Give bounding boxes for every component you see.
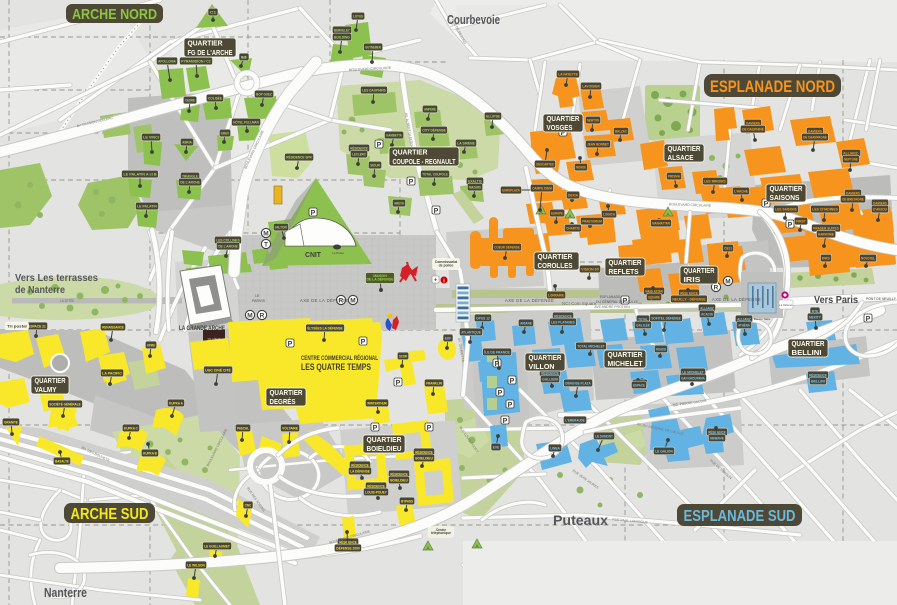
svg-text:PONT DE NEUILLY: PONT DE NEUILLY (866, 297, 897, 301)
svg-text:CNIT: CNIT (305, 252, 322, 259)
svg-text:La Défense: La Défense (779, 303, 793, 307)
svg-text:OPUS 12: OPUS 12 (476, 316, 490, 320)
svg-text:ESPACE 21: ESPACE 21 (28, 324, 46, 328)
svg-text:RENAISSANCE: RENAISSANCE (102, 325, 124, 329)
svg-text:LES SAISONS: LES SAISONS (775, 207, 797, 211)
svg-text:LA PACIFIC: LA PACIFIC (102, 371, 122, 375)
svg-text:LOUIS-POUEY: LOUIS-POUEY (365, 490, 387, 494)
svg-text:QUARTIER: QUARTIER (367, 435, 403, 444)
svg-text:RÉSIDENCE SPR: RÉSIDENCE SPR (286, 154, 312, 159)
svg-text:QUARTIER: QUARTIER (538, 252, 574, 261)
svg-text:L'EMERAUDE: L'EMERAUDE (565, 418, 585, 422)
svg-text:P: P (311, 210, 316, 217)
svg-text:ALLIANZ-: ALLIANZ- (843, 151, 860, 155)
svg-text:EDF: EDF (445, 336, 452, 340)
svg-text:RÉSIDENCE: RÉSIDENCE (554, 313, 572, 318)
svg-text:+: + (434, 278, 437, 284)
svg-text:TOTAL: TOTAL (638, 317, 649, 321)
svg-text:SQUARE: SQUARE (648, 295, 660, 299)
svg-text:BALZAC: BALZAC (615, 129, 627, 133)
svg-text:MICHELET: MICHELET (608, 359, 644, 368)
svg-text:CITY DÉFENSE: CITY DÉFENSE (422, 127, 446, 132)
svg-text:CEDRE: CEDRE (185, 98, 195, 102)
svg-text:AXE DE LA DÉFENSE: AXE DE LA DÉFENSE (505, 298, 554, 303)
svg-text:LE PALATIN: LE PALATIN (137, 204, 157, 208)
svg-text:CHARTIS: CHARTIS (566, 226, 580, 230)
svg-text:RÉSIDENCE: RÉSIDENCE (350, 145, 368, 150)
svg-text:QUARTIER: QUARTIER (770, 184, 804, 193)
svg-text:EREX: EREX (221, 131, 229, 135)
svg-text:FIRST: FIRST (796, 219, 807, 223)
svg-text:RÉSIDENCE: RÉSIDENCE (708, 429, 726, 434)
svg-text:LE DUMONT: LE DUMONT (595, 434, 613, 438)
svg-text:A: A (666, 211, 669, 216)
svg-text:GAN GROUPAMA: GAN GROUPAMA (681, 376, 705, 380)
svg-text:LECLERC: LECLERC (352, 152, 366, 156)
svg-text:GAMBETTA: GAMBETTA (386, 133, 402, 137)
svg-text:LOGICA: LOGICA (603, 212, 615, 216)
svg-text:PRAETORIUM: PRAETORIUM (582, 219, 602, 223)
svg-text:LA DÉFENSE: LA DÉFENSE (350, 468, 370, 473)
svg-text:M: M (725, 279, 730, 286)
svg-text:BELLINI: BELLINI (811, 379, 825, 383)
svg-text:APOLLONIA: APOLLONIA (158, 59, 176, 63)
svg-text:CB21: CB21 (724, 246, 732, 250)
svg-text:DÉFENSE PLAZA: DÉFENSE PLAZA (565, 380, 591, 385)
svg-text:GALILÉE: GALILÉE (636, 322, 650, 327)
svg-text:NEXITY: NEXITY (809, 315, 821, 319)
svg-text:Tri postal: Tri postal (7, 324, 27, 328)
svg-text:ABRIA: ABRIA (182, 140, 192, 144)
svg-text:AXE DE LA DÉFENSE: AXE DE LA DÉFENSE (300, 298, 349, 303)
svg-text:QUARTIER: QUARTIER (529, 353, 563, 362)
svg-text:ALSACE: ALSACE (668, 153, 694, 162)
svg-text:LAVOISIER: LAVOISIER (582, 84, 600, 88)
svg-text:NCI Com Square: NCI Com Square (562, 301, 597, 306)
svg-text:PYRAMIDION / C2: PYRAMIDION / C2 (181, 59, 210, 63)
svg-text:BOIELDIEU: BOIELDIEU (390, 478, 408, 482)
svg-text:M: M (350, 298, 355, 305)
svg-text:AXE DE LA DÉFENSE: AXE DE LA DÉFENSE (712, 297, 761, 302)
svg-text:P: P (377, 142, 382, 149)
svg-text:P: P (288, 341, 293, 348)
svg-text:BOIELDIEU: BOIELDIEU (415, 456, 433, 460)
svg-text:P: P (788, 222, 793, 229)
svg-text:LE PALATIN A et B: LE PALATIN A et B (123, 172, 157, 176)
svg-text:P: P (361, 339, 366, 346)
svg-text:DE DAUPHINÉ: DE DAUPHINÉ (742, 126, 764, 131)
svg-text:HILTON: HILTON (275, 225, 287, 229)
svg-text:LE VINCI: LE VINCI (143, 135, 159, 139)
svg-text:KUPKA B: KUPKA B (143, 451, 157, 455)
svg-text:QUARTIER: QUARTIER (608, 350, 644, 359)
svg-text:LOTUS: LOTUS (353, 14, 363, 18)
svg-text:COROLLES: COROLLES (538, 261, 573, 270)
svg-text:AMPÈRE: AMPÈRE (424, 106, 436, 111)
svg-text:BELLINI: BELLINI (792, 348, 822, 357)
svg-text:DÉFENSE 2000: DÉFENSE 2000 (336, 545, 360, 550)
svg-text:COEUR DÉFENSE: COEUR DÉFENSE (494, 244, 520, 249)
svg-text:BYPASS: BYPASS (401, 499, 413, 503)
svg-text:ESPLANADE SUD: ESPLANADE SUD (684, 508, 796, 525)
svg-text:ACACIA: ACACIA (701, 312, 713, 316)
svg-text:JEAN BONNET: JEAN BONNET (587, 142, 609, 146)
svg-text:QUARTIER: QUARTIER (668, 144, 702, 153)
svg-text:RÉSIDENCE: RÉSIDENCE (809, 372, 827, 377)
svg-text:ARCHE SUD: ARCHE SUD (71, 506, 149, 523)
svg-text:LA SIRÈNE: LA SIRÈNE (457, 140, 475, 145)
svg-text:EUROPE: EUROPE (551, 211, 563, 215)
svg-text:P: P (508, 402, 513, 409)
svg-text:LORRAINE: LORRAINE (548, 293, 564, 297)
svg-text:TRIANGLE: TRIANGLE (182, 174, 198, 178)
svg-text:DAMIERS: DAMIERS (846, 191, 860, 195)
svg-text:NEWTON: NEWTON (587, 118, 599, 122)
svg-text:SAISONS: SAISONS (770, 193, 800, 202)
svg-text:QUARTIER: QUARTIER (792, 339, 826, 348)
svg-text:DEGRÉS: DEGRÉS (270, 397, 296, 406)
svg-text:P: P (409, 179, 414, 186)
svg-text:M: M (263, 231, 268, 238)
svg-text:LE: LE (255, 294, 260, 298)
svg-text:ALLIANZ: ALLIANZ (737, 317, 751, 321)
svg-text:ESPLANADE NORD: ESPLANADE NORD (710, 77, 835, 96)
svg-text:CAMPE DIEM: CAMPE DIEM (532, 186, 552, 190)
svg-text:P: P (498, 390, 503, 397)
svg-text:L'HACHE: L'HACHE (734, 189, 748, 193)
svg-text:QUARTIER: QUARTIER (684, 266, 716, 275)
svg-text:CNC: CNC (245, 503, 252, 507)
svg-text:BASALTE: BASALTE (55, 459, 69, 463)
svg-text:GRANITE: GRANITE (4, 420, 18, 424)
svg-text:MANHATTAN: MANHATTAN (652, 221, 670, 225)
svg-text:LES CITADINES: LES CITADINES (812, 207, 838, 211)
svg-text:R: R (260, 313, 265, 320)
svg-text:QUARTIER: QUARTIER (270, 388, 304, 397)
svg-text:LES PLATANES: LES PLATANES (551, 320, 575, 324)
svg-text:DE L'ARCHE: DE L'ARCHE (180, 180, 200, 184)
svg-text:ESPLANADE: ESPLANADE (600, 295, 621, 299)
svg-text:RÉSIDENCE: RÉSIDENCE (390, 471, 408, 476)
svg-text:LES QUATRE TEMPS: LES QUATRE TEMPS (301, 362, 371, 373)
svg-text:Vers Paris: Vers Paris (814, 294, 858, 306)
svg-text:HARMONIE: HARMONIE (818, 232, 834, 236)
svg-text:Bassin Takis: Bassin Takis (754, 317, 771, 321)
svg-text:P: P (427, 425, 432, 432)
svg-text:LA JETÉE: LA JETÉE (60, 298, 75, 303)
svg-text:C1: C1 (210, 10, 216, 14)
svg-text:DAMIERS: DAMIERS (873, 201, 887, 205)
svg-text:TOTAL COUPOLE: TOTAL COUPOLE (422, 172, 448, 176)
svg-text:de Nanterre: de Nanterre (15, 285, 65, 296)
svg-text:QUARTIER: QUARTIER (188, 38, 224, 47)
svg-text:DU GÉNÉRAL DE GAULLE: DU GÉNÉRAL DE GAULLE (596, 299, 639, 304)
svg-text:EUROPLAZA: EUROPLAZA (502, 188, 520, 192)
svg-text:QUARTIER: QUARTIER (609, 258, 643, 267)
svg-text:LES DAUPHINS: LES DAUPHINS (362, 88, 386, 92)
svg-text:FRASER SUITES: FRASER SUITES (813, 226, 839, 230)
svg-text:P: P (373, 425, 378, 432)
svg-text:GUYNEMER: GUYNEMER (365, 45, 381, 49)
svg-text:ATLANTIQUE: ATLANTIQUE (461, 330, 481, 334)
svg-text:P: P (503, 418, 508, 425)
svg-text:AREVA: AREVA (394, 201, 404, 205)
svg-text:DE L'ARCHE: DE L'ARCHE (218, 244, 238, 248)
svg-text:PARVIS: PARVIS (252, 299, 265, 303)
svg-text:NEUILLY - DÉFENSE: NEUILLY - DÉFENSE (672, 296, 706, 301)
svg-text:AVE ANDRÉ PROTHIN: AVE ANDRÉ PROTHIN (594, 304, 630, 309)
svg-text:MAZARS: MAZARS (469, 185, 481, 189)
svg-text:KUPKA A: KUPKA A (169, 401, 183, 405)
svg-text:DE LA DÉFENSE: DE LA DÉFENSE (366, 276, 394, 281)
svg-text:Puteaux: Puteaux (553, 512, 608, 528)
svg-text:La Poste: La Poste (332, 251, 344, 255)
svg-text:ALLIANZ: ALLIANZ (700, 306, 714, 310)
svg-text:LA FAYETTE: LA FAYETTE (558, 72, 578, 76)
svg-text:GALLIENI: GALLIENI (542, 377, 558, 381)
svg-text:D'ANJOU: D'ANJOU (873, 207, 887, 211)
svg-text:P: P (510, 378, 515, 385)
svg-text:TOTAL MICHELET: TOTAL MICHELET (577, 344, 605, 348)
svg-text:RÉSIDENCE: RÉSIDENCE (367, 483, 385, 488)
svg-text:SIDUR: SIDUR (370, 163, 380, 167)
svg-text:LINEA: LINEA (550, 446, 560, 450)
svg-text:LE GUILLAUMET: LE GUILLAUMET (204, 544, 230, 548)
svg-text:A: A (426, 545, 429, 550)
svg-text:BUILDING: BUILDING (334, 35, 350, 39)
svg-text:VALMY: VALMY (35, 385, 57, 394)
svg-text:LES COLLINES: LES COLLINES (216, 238, 240, 242)
svg-text:EXALTIS: EXALTIS (468, 179, 482, 183)
svg-text:M: M (247, 313, 252, 320)
svg-text:UGC CINÉ CITÉ: UGC CINÉ CITÉ (205, 367, 231, 372)
svg-text:T: T (264, 242, 268, 249)
svg-text:RÉSIDENCE: RÉSIDENCE (351, 462, 369, 467)
svg-text:SOCIÉTÉ GÉNÉRALE: SOCIÉTÉ GÉNÉRALE (49, 401, 81, 406)
svg-text:RÉSIDENCE: RÉSIDENCE (415, 449, 433, 454)
svg-text:CENTRE COMMERCIAL RÉGIONAL: CENTRE COMMERCIAL RÉGIONAL (301, 353, 378, 362)
svg-text:DAMIERS: DAMIERS (746, 121, 760, 125)
svg-text:VOLTAIRE: VOLTAIRE (282, 426, 298, 430)
svg-text:DE CHAMPAGNE: DE CHAMPAGNE (803, 135, 827, 139)
svg-text:BERKELEY: BERKELEY (334, 28, 350, 32)
svg-text:HÔTEL PULLMAN: HÔTEL PULLMAN (233, 119, 259, 124)
svg-text:ELLIPSE: ELLIPSE (486, 114, 500, 118)
svg-text:RTE: RTE (812, 309, 819, 313)
svg-text:LE MICHELET: LE MICHELET (682, 370, 704, 374)
svg-text:COUPOLE - REGNAULT: COUPOLE - REGNAULT (393, 157, 456, 166)
svg-text:téléphonique: téléphonique (431, 531, 451, 535)
svg-text:Nanterre: Nanterre (44, 586, 87, 600)
svg-text:NOVOTEL: NOVOTEL (861, 256, 875, 260)
svg-text:QUARTIER: QUARTIER (35, 376, 67, 385)
svg-text:ESPACE: ESPACE (633, 383, 645, 387)
svg-text:IRIS: IRIS (684, 275, 701, 284)
svg-text:MINERVE: MINERVE (710, 436, 724, 440)
svg-text:SOFITEL DÉFENSE: SOFITEL DÉFENSE (651, 315, 681, 320)
svg-text:BOP GUEZ: BOP GUEZ (256, 92, 272, 96)
svg-text:PRISMA: PRISMA (668, 174, 680, 178)
svg-text:MONDE: MONDE (576, 165, 586, 169)
svg-text:DESCARTES: DESCARTES (536, 162, 554, 166)
svg-text:R: R (714, 285, 719, 292)
svg-text:DAMIERS: DAMIERS (808, 129, 822, 133)
svg-text:ÉLYSÉES LA DÉFENSE: ÉLYSÉES LA DÉFENSE (307, 325, 343, 330)
svg-text:LE GALION: LE GALION (655, 449, 673, 453)
svg-text:P: P (434, 208, 439, 215)
svg-text:P: P (866, 316, 871, 323)
svg-text:REFLETS: REFLETS (609, 267, 639, 276)
svg-text:ATHÉNA: ATHÉNA (738, 322, 750, 327)
svg-text:FG DE L'ARCHE: FG DE L'ARCHE (188, 48, 233, 57)
svg-text:COLISÉE: COLISÉE (208, 95, 222, 100)
svg-text:Vers Les terrasses: Vers Les terrasses (15, 273, 98, 284)
svg-text:NEPTUNE: NEPTUNE (844, 157, 858, 161)
svg-text:VILLON: VILLON (529, 362, 555, 371)
svg-text:KPMG: KPMG (147, 343, 155, 347)
svg-text:PASCAL: PASCAL (237, 426, 250, 430)
svg-text:ARIANE: ARIANE (520, 321, 532, 325)
svg-text:SCOR: SCOR (399, 354, 407, 358)
svg-text:P: P (396, 380, 401, 387)
svg-text:IRIS: IRIS (822, 256, 831, 260)
svg-text:A: A (568, 213, 571, 218)
svg-text:QUARTIER: QUARTIER (393, 147, 429, 156)
svg-text:de police: de police (439, 263, 454, 267)
svg-text:EVE: EVE (493, 445, 500, 449)
svg-text:A: A (475, 543, 478, 548)
svg-text:VOSGES: VOSGES (547, 123, 573, 132)
svg-text:VISION 80: VISION 80 (581, 267, 599, 271)
svg-text:MANHATTAN: MANHATTAN (645, 289, 663, 293)
svg-text:DE BRETAGNE: DE BRETAGNE (842, 197, 864, 201)
svg-text:ÎLE DE FRANCE: ÎLE DE FRANCE (483, 349, 510, 354)
svg-text:ARCHE NORD: ARCHE NORD (72, 6, 157, 23)
svg-text:QUARTIER: QUARTIER (547, 114, 581, 123)
svg-text:DEXIA: DEXIA (568, 193, 578, 197)
svg-text:FRANKLIN: FRANKLIN (426, 381, 442, 385)
svg-text:BOIELDIEU: BOIELDIEU (367, 444, 402, 453)
svg-text:LE WILSON: LE WILSON (187, 563, 205, 567)
svg-text:KUPKA C: KUPKA C (124, 426, 138, 430)
svg-text:LES MIROIRS: LES MIROIRS (704, 179, 726, 183)
svg-text:ROADD: ROADD (656, 347, 666, 351)
svg-text:WINTERTHUR: WINTERTHUR (367, 401, 387, 405)
